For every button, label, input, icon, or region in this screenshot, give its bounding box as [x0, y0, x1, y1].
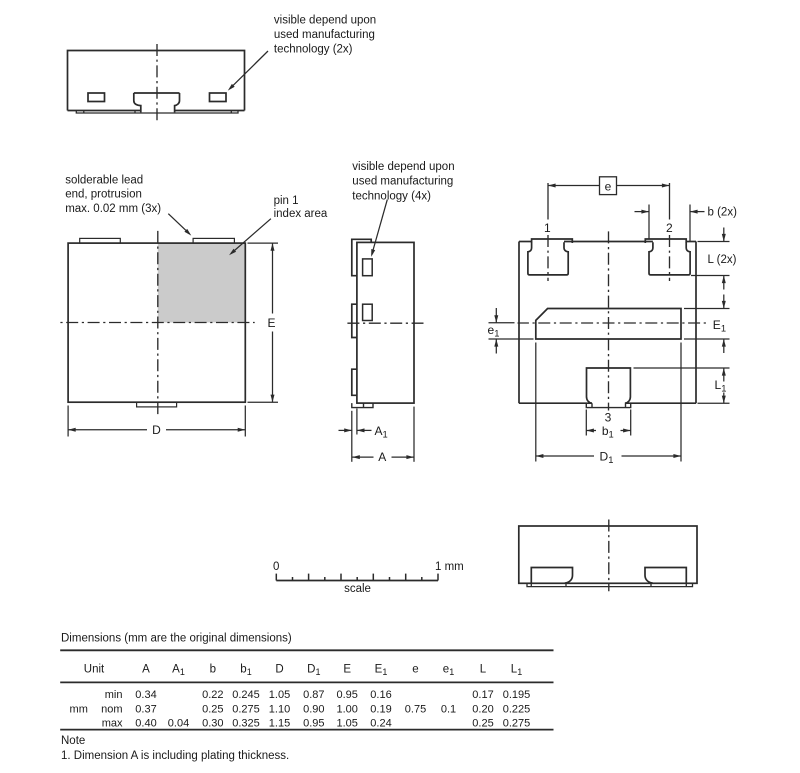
svg-text:visible depend upon: visible depend upon — [352, 161, 454, 173]
svg-text:1.05: 1.05 — [336, 718, 357, 730]
svg-text:0.37: 0.37 — [135, 703, 156, 715]
svg-text:pin 1: pin 1 — [274, 195, 299, 207]
svg-text:1: 1 — [544, 221, 551, 235]
svg-text:L: L — [480, 663, 487, 675]
svg-text:0.40: 0.40 — [135, 718, 156, 730]
svg-text:E: E — [343, 663, 351, 675]
svg-text:1.00: 1.00 — [336, 703, 357, 715]
svg-text:index area: index area — [274, 208, 328, 220]
svg-text:0.16: 0.16 — [370, 689, 391, 701]
svg-text:0.30: 0.30 — [202, 718, 223, 730]
svg-text:scale: scale — [344, 583, 371, 595]
svg-text:min: min — [105, 689, 123, 701]
svg-text:0.19: 0.19 — [370, 703, 391, 715]
svg-text:Dimensions (mm are the origina: Dimensions (mm are the original dimensio… — [61, 633, 292, 645]
svg-text:1.10: 1.10 — [269, 703, 290, 715]
svg-text:0.90: 0.90 — [303, 703, 324, 715]
svg-text:max: max — [102, 718, 123, 730]
svg-text:0.24: 0.24 — [370, 718, 391, 730]
svg-text:A: A — [142, 663, 150, 675]
svg-text:b (2x): b (2x) — [708, 206, 738, 218]
svg-text:0.25: 0.25 — [472, 718, 493, 730]
svg-text:A: A — [378, 450, 386, 464]
svg-text:1 mm: 1 mm — [435, 561, 464, 573]
svg-text:0.1: 0.1 — [441, 703, 456, 715]
svg-text:D: D — [275, 663, 283, 675]
svg-text:0.75: 0.75 — [405, 703, 426, 715]
svg-text:visible depend upon: visible depend upon — [274, 14, 376, 26]
svg-text:Note: Note — [61, 735, 85, 747]
svg-text:0.25: 0.25 — [202, 703, 223, 715]
svg-text:0.275: 0.275 — [503, 718, 531, 730]
svg-text:1.05: 1.05 — [269, 689, 290, 701]
svg-text:E: E — [267, 316, 275, 330]
svg-text:0.275: 0.275 — [232, 703, 260, 715]
svg-text:solderable lead: solderable lead — [65, 174, 143, 186]
svg-text:technology (4x): technology (4x) — [352, 190, 431, 202]
svg-text:e: e — [605, 179, 612, 193]
svg-text:3: 3 — [605, 411, 612, 425]
svg-text:b: b — [210, 663, 216, 675]
svg-text:0.87: 0.87 — [303, 689, 324, 701]
svg-text:mm: mm — [70, 703, 88, 715]
svg-text:1.15: 1.15 — [269, 718, 290, 730]
svg-text:0.17: 0.17 — [472, 689, 493, 701]
svg-text:0.34: 0.34 — [135, 689, 156, 701]
svg-text:technology (2x): technology (2x) — [274, 44, 353, 56]
svg-text:0.245: 0.245 — [232, 689, 260, 701]
svg-text:0.195: 0.195 — [503, 689, 531, 701]
svg-text:D: D — [152, 423, 161, 437]
svg-text:0.325: 0.325 — [232, 718, 260, 730]
svg-text:0.22: 0.22 — [202, 689, 223, 701]
svg-text:L (2x): L (2x) — [708, 254, 737, 266]
svg-text:end, protrusion: end, protrusion — [65, 189, 142, 201]
svg-text:max. 0.02 mm (3x): max. 0.02 mm (3x) — [65, 203, 161, 215]
svg-text:used manufacturing: used manufacturing — [352, 176, 453, 188]
svg-text:nom: nom — [101, 703, 122, 715]
svg-text:0.95: 0.95 — [336, 689, 357, 701]
svg-text:0.04: 0.04 — [168, 718, 189, 730]
svg-text:2: 2 — [666, 221, 673, 235]
svg-text:Unit: Unit — [84, 663, 105, 675]
svg-text:1. Dimension A is including pl: 1. Dimension A is including plating thic… — [61, 750, 289, 762]
svg-text:0.225: 0.225 — [503, 703, 531, 715]
svg-text:0: 0 — [273, 561, 279, 573]
svg-text:e: e — [412, 663, 418, 675]
svg-text:0.20: 0.20 — [472, 703, 493, 715]
svg-text:0.95: 0.95 — [303, 718, 324, 730]
svg-text:used manufacturing: used manufacturing — [274, 29, 375, 41]
